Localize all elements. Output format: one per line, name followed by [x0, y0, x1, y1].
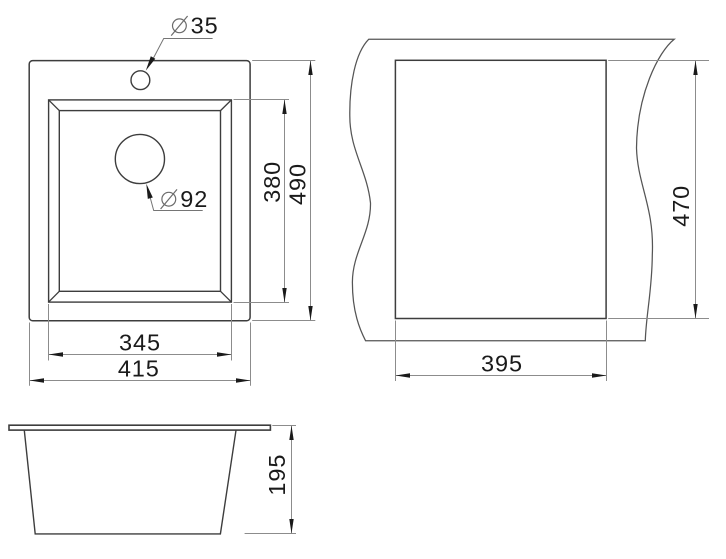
svg-text:415: 415	[118, 355, 160, 381]
svg-text:92: 92	[180, 186, 208, 212]
svg-text:345: 345	[119, 330, 161, 356]
svg-text:380: 380	[259, 161, 285, 203]
svg-text:490: 490	[285, 163, 311, 205]
svg-text:395: 395	[481, 351, 523, 377]
svg-text:35: 35	[191, 13, 219, 39]
svg-text:470: 470	[668, 185, 694, 227]
svg-text:195: 195	[264, 454, 290, 496]
